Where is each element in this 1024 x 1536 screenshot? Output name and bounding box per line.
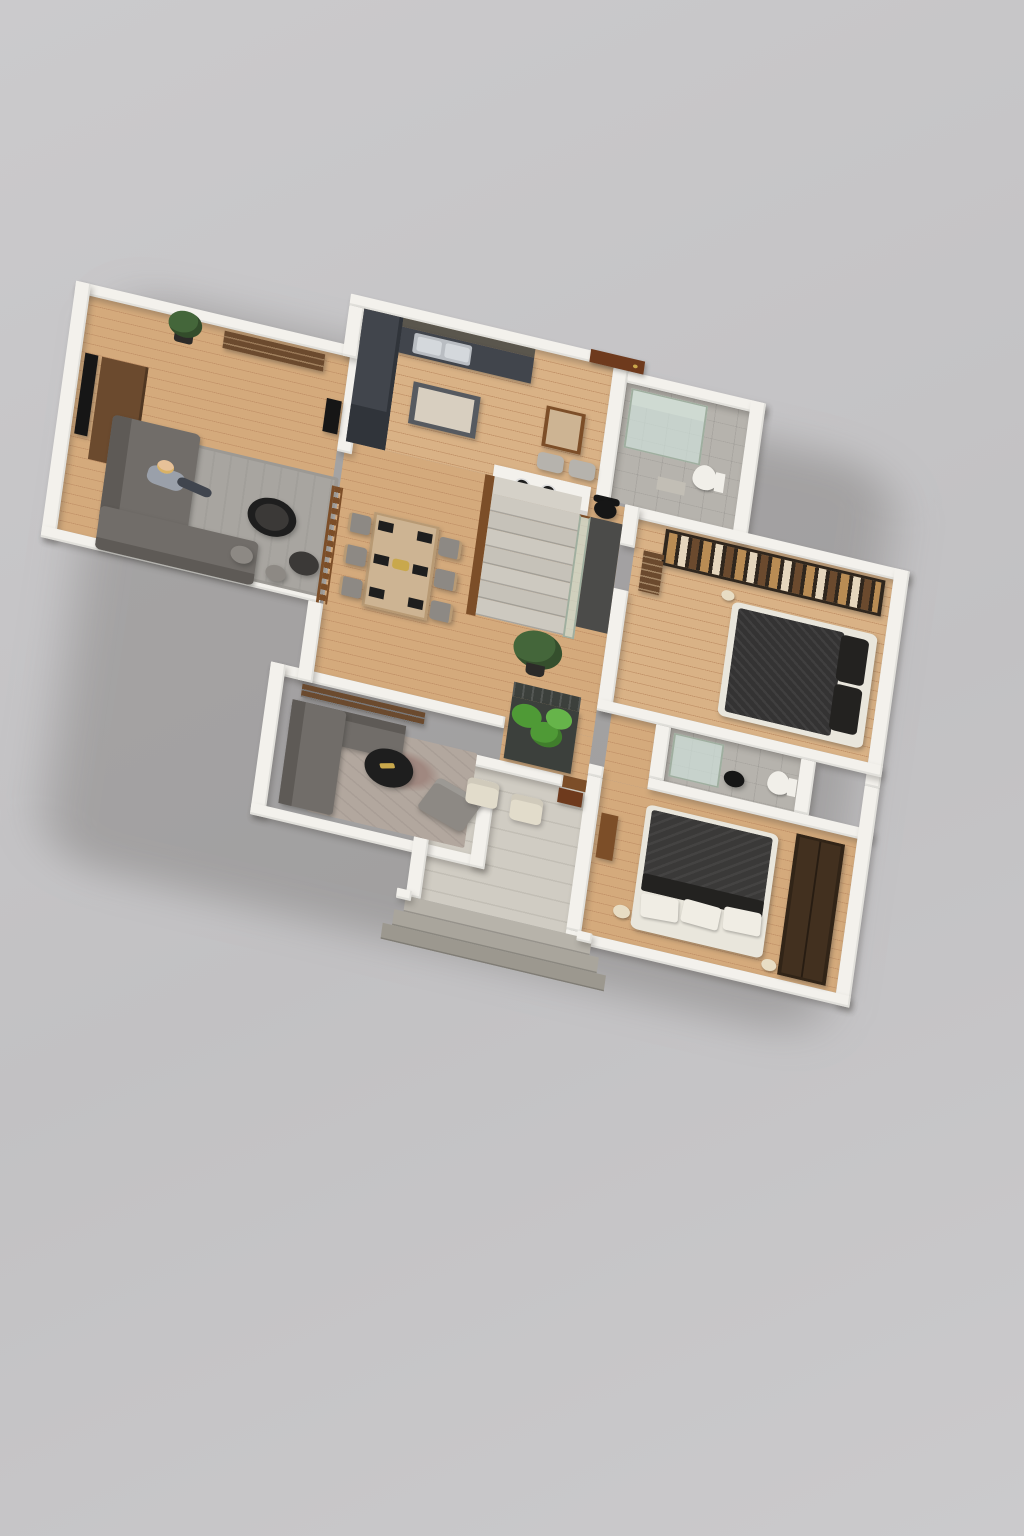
lounge-table-gold-item: [379, 763, 395, 768]
door-handle: [633, 364, 638, 369]
scene-ground: [0, 0, 1024, 1536]
floor-plan: [0, 226, 934, 1076]
breakfast-table-top: [545, 409, 581, 451]
